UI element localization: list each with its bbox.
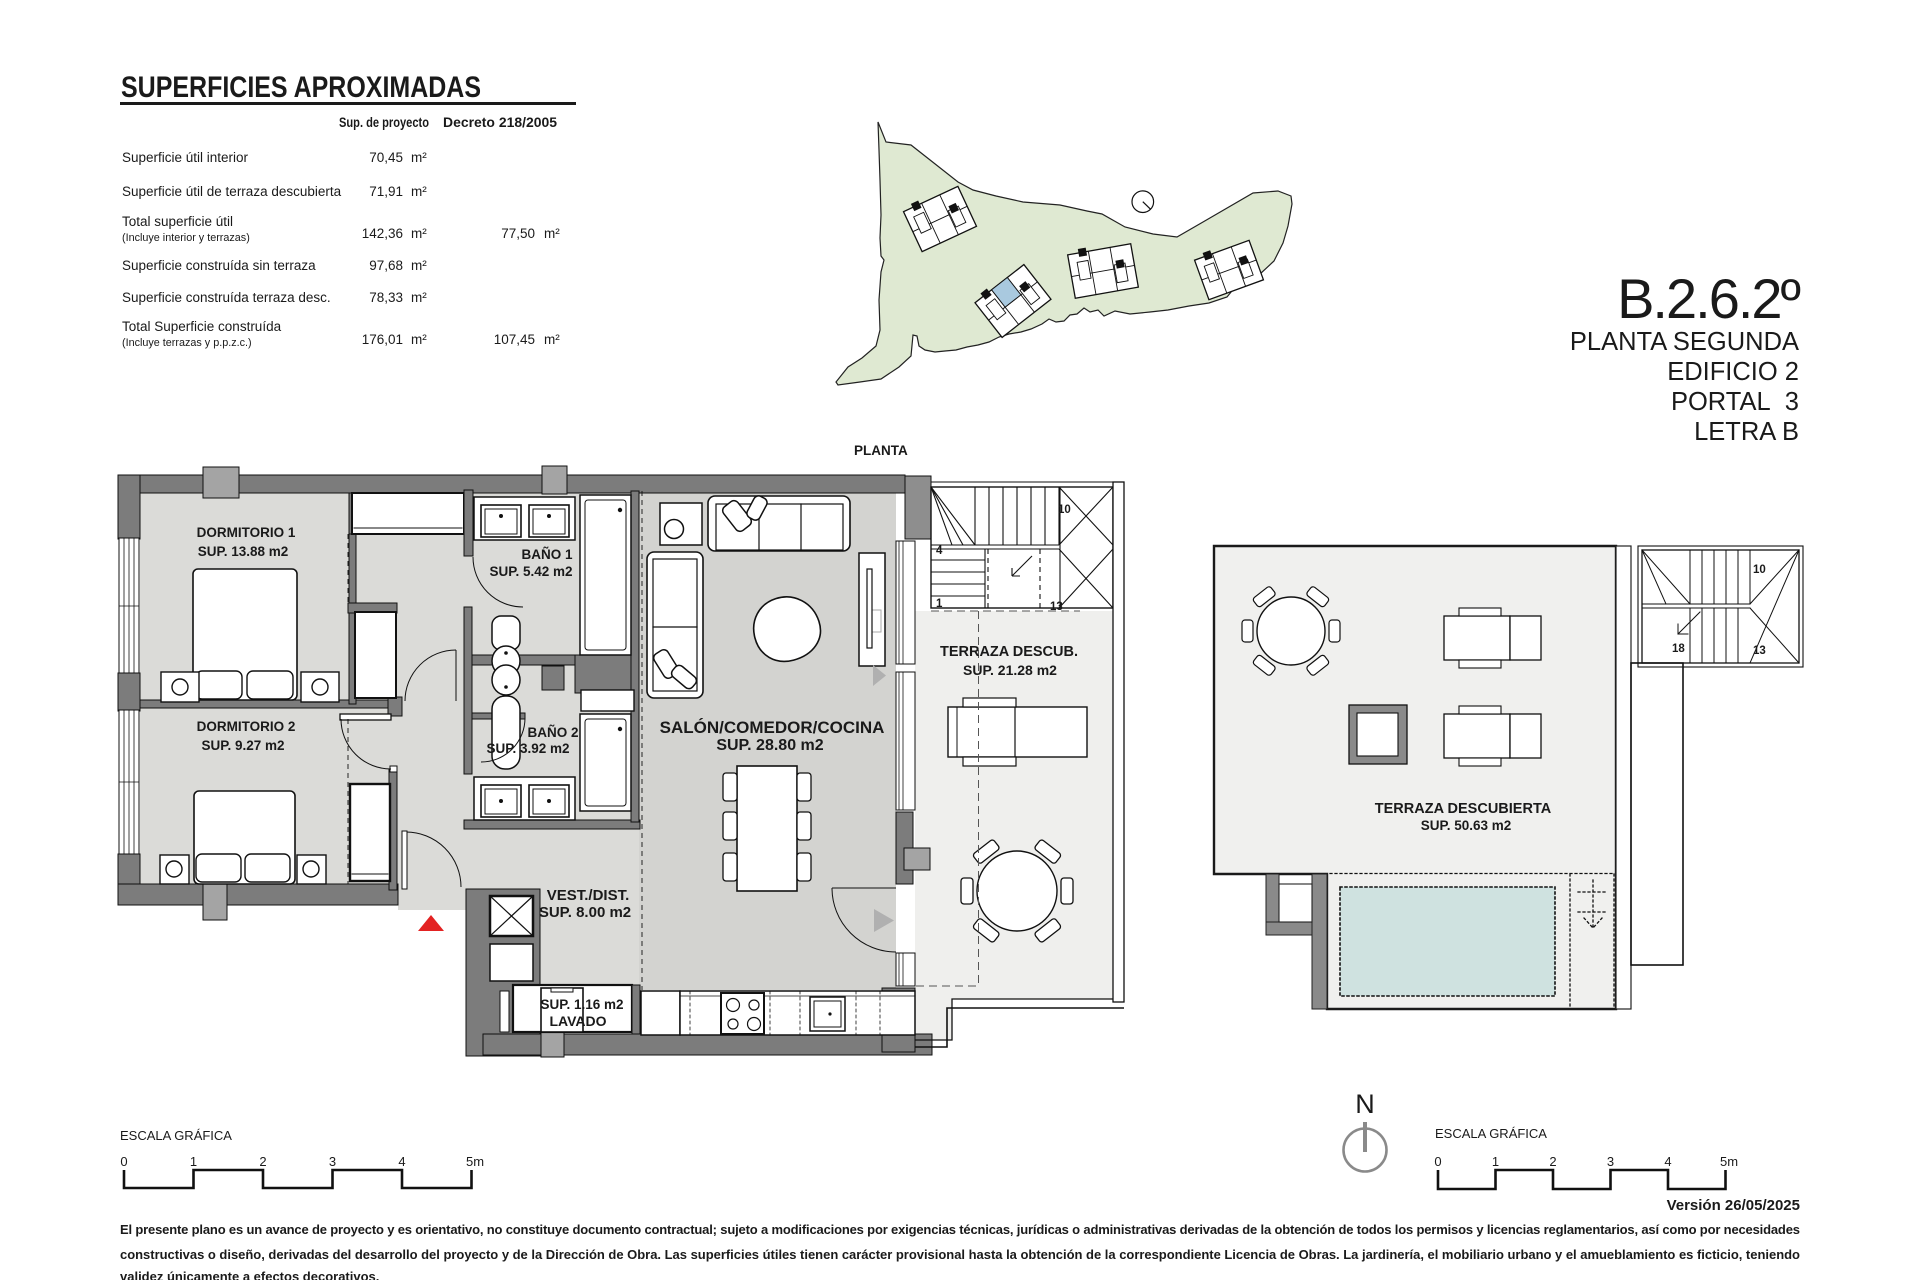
svg-text:77,50: 77,50	[501, 226, 535, 241]
svg-text:El presente plano es un avance: El presente plano es un avance de proyec…	[120, 1222, 1800, 1237]
svg-text:N: N	[1355, 1089, 1375, 1119]
svg-text:4: 4	[398, 1154, 405, 1169]
svg-text:13: 13	[1753, 645, 1766, 657]
svg-text:Superficie construída terraza: Superficie construída terraza desc.	[122, 290, 331, 305]
svg-text:SUP. 21.28 m2: SUP. 21.28 m2	[963, 662, 1057, 678]
svg-text:LETRA B: LETRA B	[1694, 418, 1799, 446]
svg-text:13: 13	[1050, 601, 1063, 613]
svg-text:2: 2	[259, 1154, 266, 1169]
svg-text:3: 3	[329, 1154, 336, 1169]
svg-text:LAVADO: LAVADO	[549, 1013, 606, 1029]
svg-text:PLANTA SEGUNDA: PLANTA SEGUNDA	[1570, 328, 1799, 356]
svg-text:TERRAZA DESCUBIERTA: TERRAZA DESCUBIERTA	[1375, 801, 1552, 817]
svg-text:1: 1	[190, 1154, 197, 1169]
svg-text:Superficie útil de terraza des: Superficie útil de terraza descubierta	[122, 184, 342, 199]
svg-text:Total superficie útil: Total superficie útil	[122, 214, 233, 229]
svg-text:DORMITORIO 1: DORMITORIO 1	[197, 525, 296, 540]
svg-text:BAÑO 2: BAÑO 2	[527, 725, 578, 740]
svg-text:Total Superficie construída: Total Superficie construída	[122, 319, 282, 334]
svg-text:PORTAL 3: PORTAL 3	[1671, 388, 1799, 416]
svg-text:m²: m²	[544, 332, 560, 347]
svg-text:m²: m²	[411, 258, 427, 273]
svg-text:71,91: 71,91	[369, 184, 403, 199]
svg-text:SUP. 28.80 m2: SUP. 28.80 m2	[716, 737, 823, 754]
svg-text:SUPERFICIES APROXIMADAS: SUPERFICIES APROXIMADAS	[121, 71, 481, 104]
svg-text:Decreto 218/2005: Decreto 218/2005	[443, 115, 558, 130]
svg-text:4: 4	[1664, 1154, 1671, 1169]
svg-text:78,33: 78,33	[369, 290, 403, 305]
svg-text:5m: 5m	[466, 1154, 484, 1169]
svg-text:107,45: 107,45	[494, 332, 535, 347]
svg-text:0: 0	[1434, 1154, 1441, 1169]
svg-text:10: 10	[1058, 504, 1071, 516]
svg-text:SUP. 3.92 m2: SUP. 3.92 m2	[486, 741, 569, 756]
svg-text:ESCALA GRÁFICA: ESCALA GRÁFICA	[1435, 1126, 1547, 1141]
svg-text:176,01: 176,01	[362, 332, 403, 347]
svg-text:3: 3	[1607, 1154, 1614, 1169]
svg-text:97,68: 97,68	[369, 258, 403, 273]
svg-text:(Incluye terrazas y p.p.z.c.): (Incluye terrazas y p.p.z.c.)	[122, 337, 252, 349]
svg-text:SUP. 13.88 m2: SUP. 13.88 m2	[198, 544, 289, 559]
svg-text:0: 0	[120, 1154, 127, 1169]
svg-text:SUP. 1.16 m2: SUP. 1.16 m2	[540, 997, 623, 1012]
svg-text:m²: m²	[411, 184, 427, 199]
svg-text:5m: 5m	[1720, 1154, 1738, 1169]
svg-text:18: 18	[1672, 643, 1685, 655]
svg-text:4: 4	[936, 545, 943, 557]
svg-text:BAÑO 1: BAÑO 1	[521, 547, 572, 562]
svg-text:142,36: 142,36	[362, 226, 403, 241]
svg-text:SALÓN/COMEDOR/COCINA: SALÓN/COMEDOR/COCINA	[660, 718, 885, 737]
svg-text:SUP. 8.00 m2: SUP. 8.00 m2	[539, 904, 631, 921]
svg-text:validez únicamente a efectos d: validez únicamente a efectos decorativos…	[120, 1269, 379, 1280]
svg-text:1: 1	[936, 598, 943, 610]
svg-text:70,45: 70,45	[369, 150, 403, 165]
svg-text:B.2.6.2º: B.2.6.2º	[1617, 267, 1800, 330]
svg-text:SUP. 9.27 m2: SUP. 9.27 m2	[201, 738, 284, 753]
svg-text:(Incluye interior y terrazas): (Incluye interior y terrazas)	[122, 232, 250, 244]
svg-text:SUP. 5.42 m2: SUP. 5.42 m2	[489, 564, 572, 579]
svg-text:m²: m²	[544, 226, 560, 241]
svg-text:constructivas o diseño, deriva: constructivas o diseño, derivadas del de…	[120, 1247, 1800, 1262]
svg-text:TERRAZA DESCUB.: TERRAZA DESCUB.	[940, 644, 1078, 660]
svg-text:DORMITORIO 2: DORMITORIO 2	[197, 719, 296, 734]
svg-text:Superficie construída sin terr: Superficie construída sin terraza	[122, 258, 316, 273]
svg-text:VEST./DIST.: VEST./DIST.	[547, 887, 630, 904]
svg-text:Versión 26/05/2025: Versión 26/05/2025	[1667, 1197, 1800, 1214]
svg-text:PLANTA: PLANTA	[854, 443, 908, 458]
svg-text:m²: m²	[411, 332, 427, 347]
svg-text:ESCALA GRÁFICA: ESCALA GRÁFICA	[120, 1128, 232, 1143]
svg-text:Superficie útil interior: Superficie útil interior	[122, 150, 249, 165]
svg-text:1: 1	[1492, 1154, 1499, 1169]
svg-text:2: 2	[1549, 1154, 1556, 1169]
svg-text:EDIFICIO 2: EDIFICIO 2	[1667, 358, 1799, 386]
svg-text:m²: m²	[411, 226, 427, 241]
svg-text:m²: m²	[411, 290, 427, 305]
svg-text:Sup. de proyecto: Sup. de proyecto	[339, 115, 429, 130]
svg-text:10: 10	[1753, 564, 1766, 576]
svg-text:SUP. 50.63 m2: SUP. 50.63 m2	[1421, 818, 1512, 833]
svg-text:m²: m²	[411, 150, 427, 165]
